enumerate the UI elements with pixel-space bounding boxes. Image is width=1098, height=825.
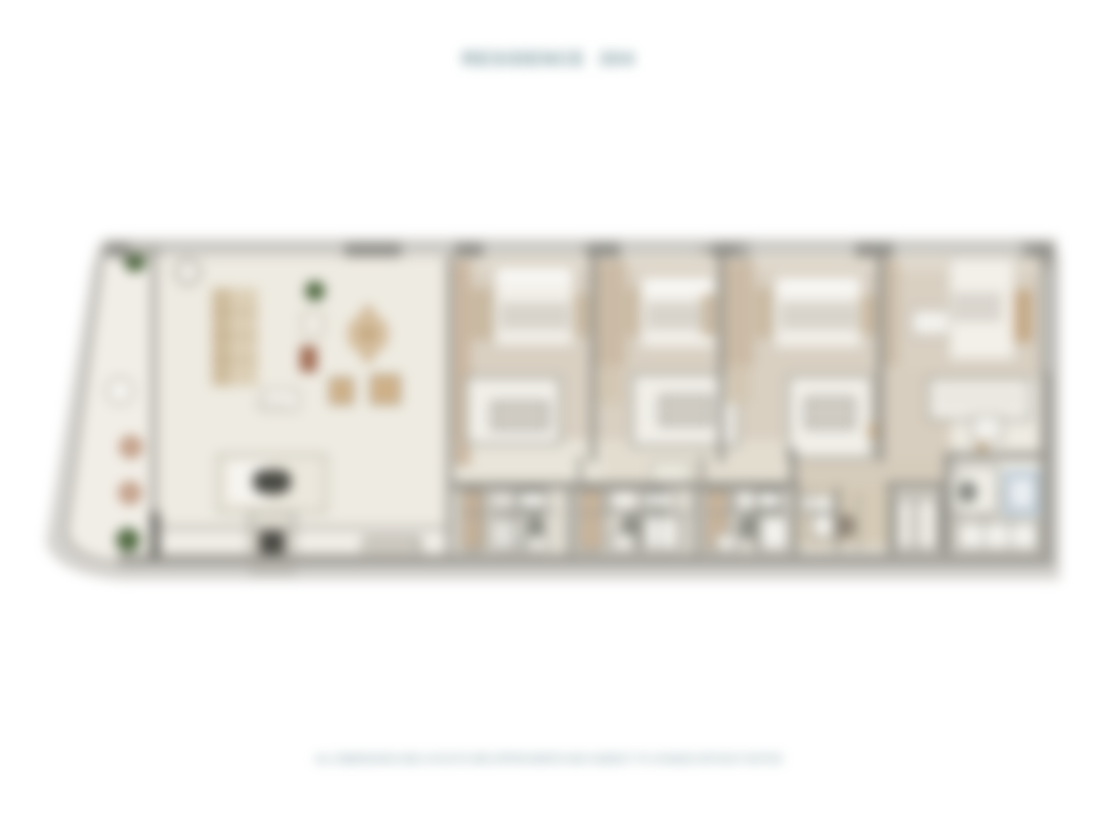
svg-text:LIVING: LIVING xyxy=(254,399,290,409)
